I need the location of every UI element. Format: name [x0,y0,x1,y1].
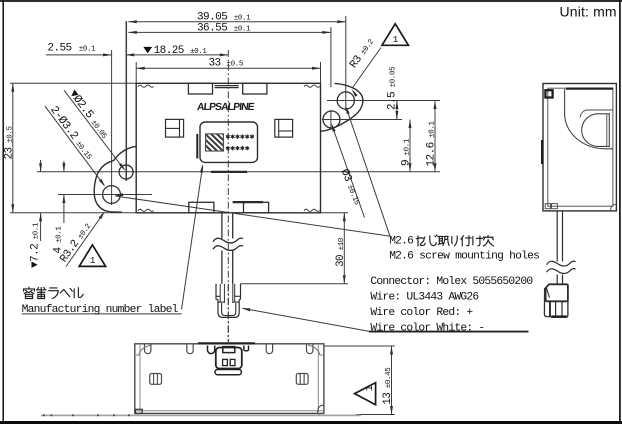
svg-text:±0.1: ±0.1 [234,14,251,22]
svg-text:Connector: Molex 5055650200: Connector: Molex 5055650200 [370,276,533,288]
svg-text:±0.1: ±0.1 [403,138,411,155]
svg-text:9: 9 [400,160,412,166]
svg-text:M2.6 screw mounting holes: M2.6 screw mounting holes [389,250,539,262]
svg-text:1: 1 [365,385,376,391]
svg-text:1: 1 [393,34,399,45]
svg-text:±0.45: ±0.45 [385,367,393,388]
svg-text:Unit: mm: Unit: mm [560,3,617,19]
svg-text:1: 1 [90,255,96,266]
svg-text:30: 30 [335,255,347,267]
svg-text:33: 33 [209,57,221,69]
svg-text:▼7.2: ▼7.2 [30,244,42,268]
svg-text:±0.1: ±0.1 [429,120,437,137]
svg-text:Wire: UL3443 AWG26: Wire: UL3443 AWG26 [370,292,479,304]
svg-text:±0.1: ±0.1 [33,222,41,239]
svg-text:2.55: 2.55 [47,43,71,55]
svg-text:ALPSALPINE: ALPSALPINE [196,102,255,113]
svg-text:2.5: 2.5 [387,92,399,110]
svg-text:23: 23 [4,147,16,159]
svg-text:±0.1: ±0.1 [56,226,64,243]
svg-text:13: 13 [382,393,394,405]
svg-text:18.25: 18.25 [154,45,184,57]
svg-text:Wire color Red: +: Wire color Red: + [370,307,473,319]
svg-text:12.6: 12.6 [426,142,438,166]
svg-text:39.05: 39.05 [197,11,227,23]
svg-text:±0.1: ±0.1 [234,26,251,34]
svg-text:Wire color White: -: Wire color White: - [370,322,484,334]
svg-text:M2.6: M2.6 [389,236,414,248]
svg-text:±0.1: ±0.1 [190,48,207,56]
svg-text:Manufacturing number label: Manufacturing number label [22,304,179,316]
svg-text:±0.1: ±0.1 [79,46,96,54]
svg-text:±0.5: ±0.5 [7,126,15,143]
svg-text:±0.05: ±0.05 [390,66,398,87]
svg-text:±10: ±10 [338,237,346,250]
svg-text:±0.5: ±0.5 [227,60,244,68]
svg-text:36.55: 36.55 [197,23,227,35]
